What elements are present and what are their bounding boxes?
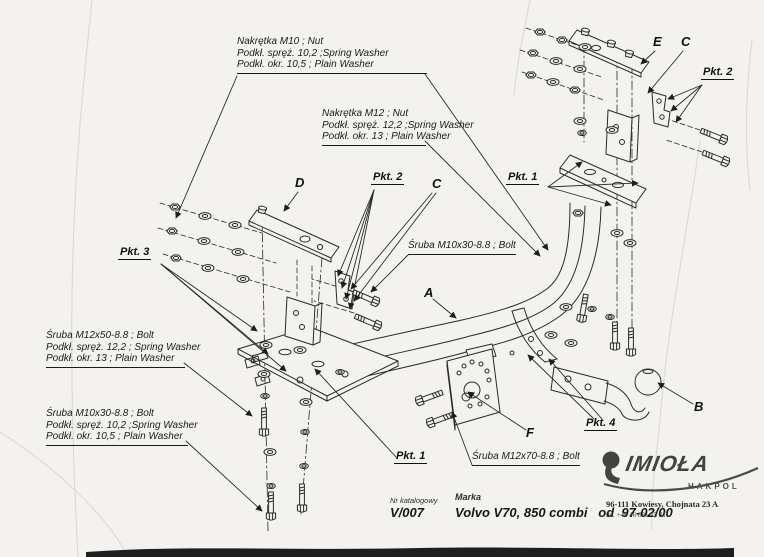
address-line-1: 96-111 Kowiesy, Chojnata 23 A xyxy=(606,499,718,509)
note-bolt-m10x30: Śruba M10x30-8.8 ; Bolt xyxy=(408,240,516,255)
hardware-left-grid xyxy=(167,204,249,282)
point-label-pkt1-bottom: Pkt. 1 xyxy=(394,450,427,464)
part-label-d: D xyxy=(295,175,305,190)
part-label-f: F xyxy=(526,425,534,440)
hardware-right-columns xyxy=(545,210,636,356)
note-nut-m10: Nakrętka M10 ; Nut Podkł. spręż. 10,2 ;S… xyxy=(237,36,427,74)
note-line: Podkł. okr. 13 ; Plain Washer xyxy=(322,131,426,143)
part-label-a: A xyxy=(424,285,434,300)
note-line: Śruba M10x30-8.8 ; Bolt xyxy=(46,408,188,420)
note-bolt-m12x50: Śruba M12x50-8.8 ; Bolt Podkł. spręż. 12… xyxy=(46,330,185,368)
crossbar-left-plate xyxy=(238,327,398,401)
note-line: Podkł. spręż. 12,2 ; Spring Washer xyxy=(46,342,185,354)
note-line: Podkł. okr. 13 ; Plain Washer xyxy=(46,353,185,365)
note-line: Podkł. okr. 10,5 ; Plain Washer xyxy=(46,431,188,443)
note-bolt-m10x30-stack: Śruba M10x30-8.8 ; Bolt Podkł. spręż. 10… xyxy=(46,408,188,446)
part-label-c: C xyxy=(681,34,691,49)
point-label-pkt4: Pkt. 4 xyxy=(584,417,617,431)
note-line: Podkł. spręż. 10,2 ;Spring Washer xyxy=(237,48,427,60)
note-line: Podkł. okr. 10,5 ; Plain Washer xyxy=(237,59,427,71)
part-label-c2: C xyxy=(432,176,442,191)
note-line: Nakrętka M12 ; Nut xyxy=(322,108,426,120)
brand-label: Marka xyxy=(455,492,481,502)
point-label-pkt2-mid: Pkt. 2 xyxy=(371,171,404,185)
point-label-pkt1-right: Pkt. 1 xyxy=(506,171,539,185)
manufacturer-logo: IMIOŁA HAKPOL xyxy=(598,448,762,498)
catalog-number-label: Nr katalogowy xyxy=(390,496,438,505)
address-line-2: tel. +48 46 831 75 31 xyxy=(606,511,666,519)
point-label-pkt2-top: Pkt. 2 xyxy=(701,66,734,80)
note-nut-m12: Nakrętka M12 ; Nut Podkł. spręż. 12,2 ;S… xyxy=(322,108,426,146)
plate-f xyxy=(447,344,500,430)
logo-subtitle: HAKPOL xyxy=(688,482,740,491)
note-line: Podkł. spręż. 12,2 ;Spring Washer xyxy=(322,120,426,132)
note-line: Podkł. spręż. 10,2 ;Spring Washer xyxy=(46,420,188,432)
logo-name: IMIOŁA xyxy=(624,451,712,477)
note-bolt-m12x70: Śruba M12x70-8.8 ; Bolt xyxy=(472,451,580,466)
catalog-number-value: V/007 xyxy=(390,505,424,520)
part-label-e: E xyxy=(653,34,662,49)
note-line: Śruba M12x50-8.8 ; Bolt xyxy=(46,330,185,342)
part-label-b: B xyxy=(694,399,704,414)
scan-edge xyxy=(86,548,734,557)
left-bracket-assembly xyxy=(249,210,354,345)
note-line: Nakrętka M10 ; Nut xyxy=(237,36,427,48)
point-label-pkt3: Pkt. 3 xyxy=(118,246,151,260)
scanned-drawing-page: Nakrętka M10 ; Nut Podkł. spręż. 10,2 ;S… xyxy=(0,0,764,557)
